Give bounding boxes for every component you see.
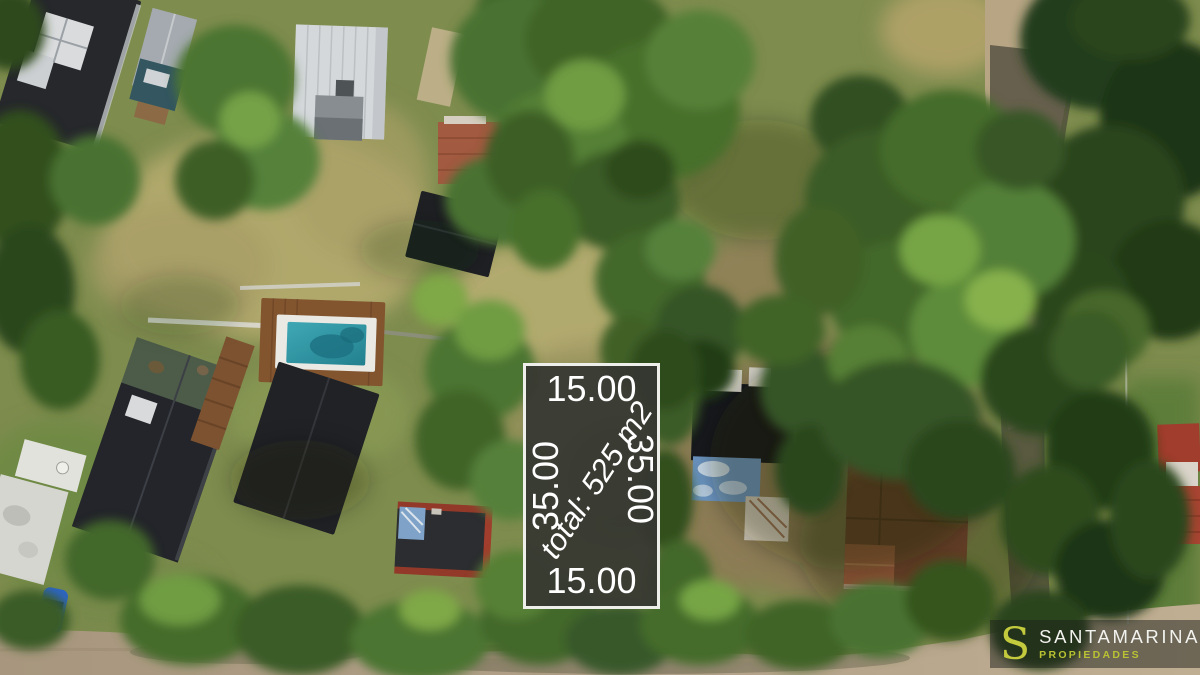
shed-red-trim: [394, 502, 493, 579]
property-boundary-overlay: 15.00 35.00 35.00 15.00 total: 525 m2: [523, 363, 660, 609]
dimension-top: 15.00: [546, 371, 636, 407]
brand-name: SANTAMARINA: [1039, 627, 1200, 646]
brand-subtitle: PROPIEDADES: [1039, 649, 1200, 661]
aerial-photo: 15.00 35.00 35.00 15.00 total: 525 m2 S …: [0, 0, 1200, 675]
santamarina-logo-icon: S: [1000, 628, 1030, 662]
agency-watermark: S SANTAMARINA PROPIEDADES: [990, 620, 1200, 668]
agency-wordmark: SANTAMARINA PROPIEDADES: [1039, 627, 1200, 660]
house-white-roof: [292, 24, 388, 141]
dimension-bottom: 15.00: [546, 563, 636, 599]
